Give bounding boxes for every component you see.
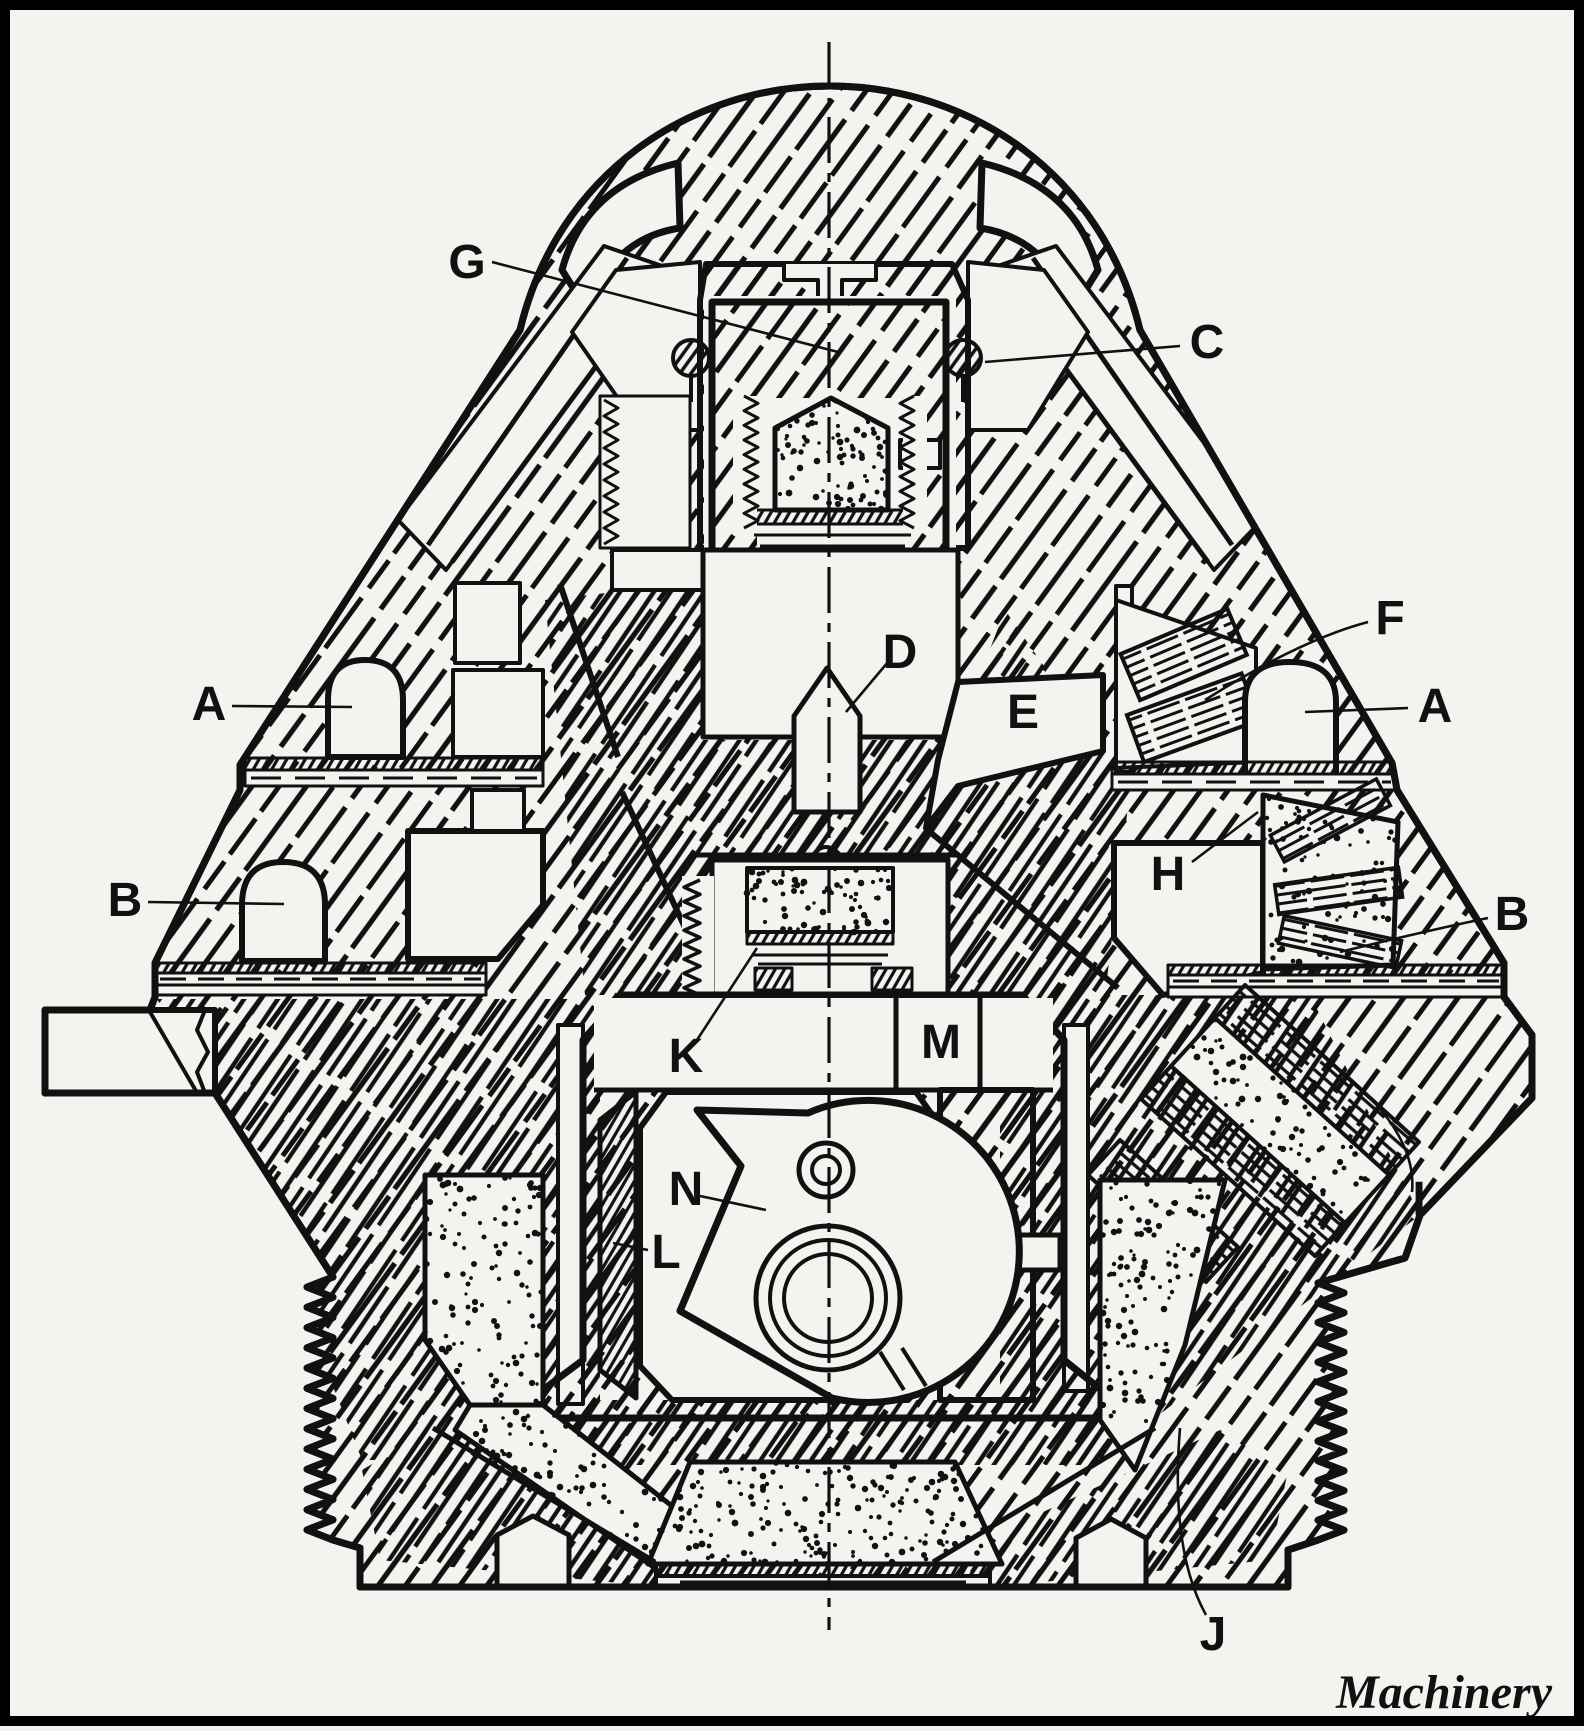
svg-text:B: B [108,874,143,927]
svg-text:I: I [1412,1173,1425,1226]
svg-text:H: H [1151,848,1186,901]
svg-text:A: A [192,678,227,731]
svg-text:B: B [1495,888,1530,941]
svg-text:D: D [883,626,918,679]
svg-text:F: F [1375,592,1404,645]
svg-text:J: J [1200,1608,1227,1661]
svg-text:L: L [651,1226,680,1279]
svg-text:M: M [921,1016,961,1069]
svg-text:E: E [1007,686,1039,739]
svg-text:N: N [669,1163,704,1216]
svg-text:G: G [448,236,485,289]
svg-text:C: C [1190,316,1225,369]
svg-text:K: K [669,1030,704,1083]
svg-text:Machinery: Machinery [1335,1666,1553,1719]
svg-text:A: A [1418,680,1453,733]
